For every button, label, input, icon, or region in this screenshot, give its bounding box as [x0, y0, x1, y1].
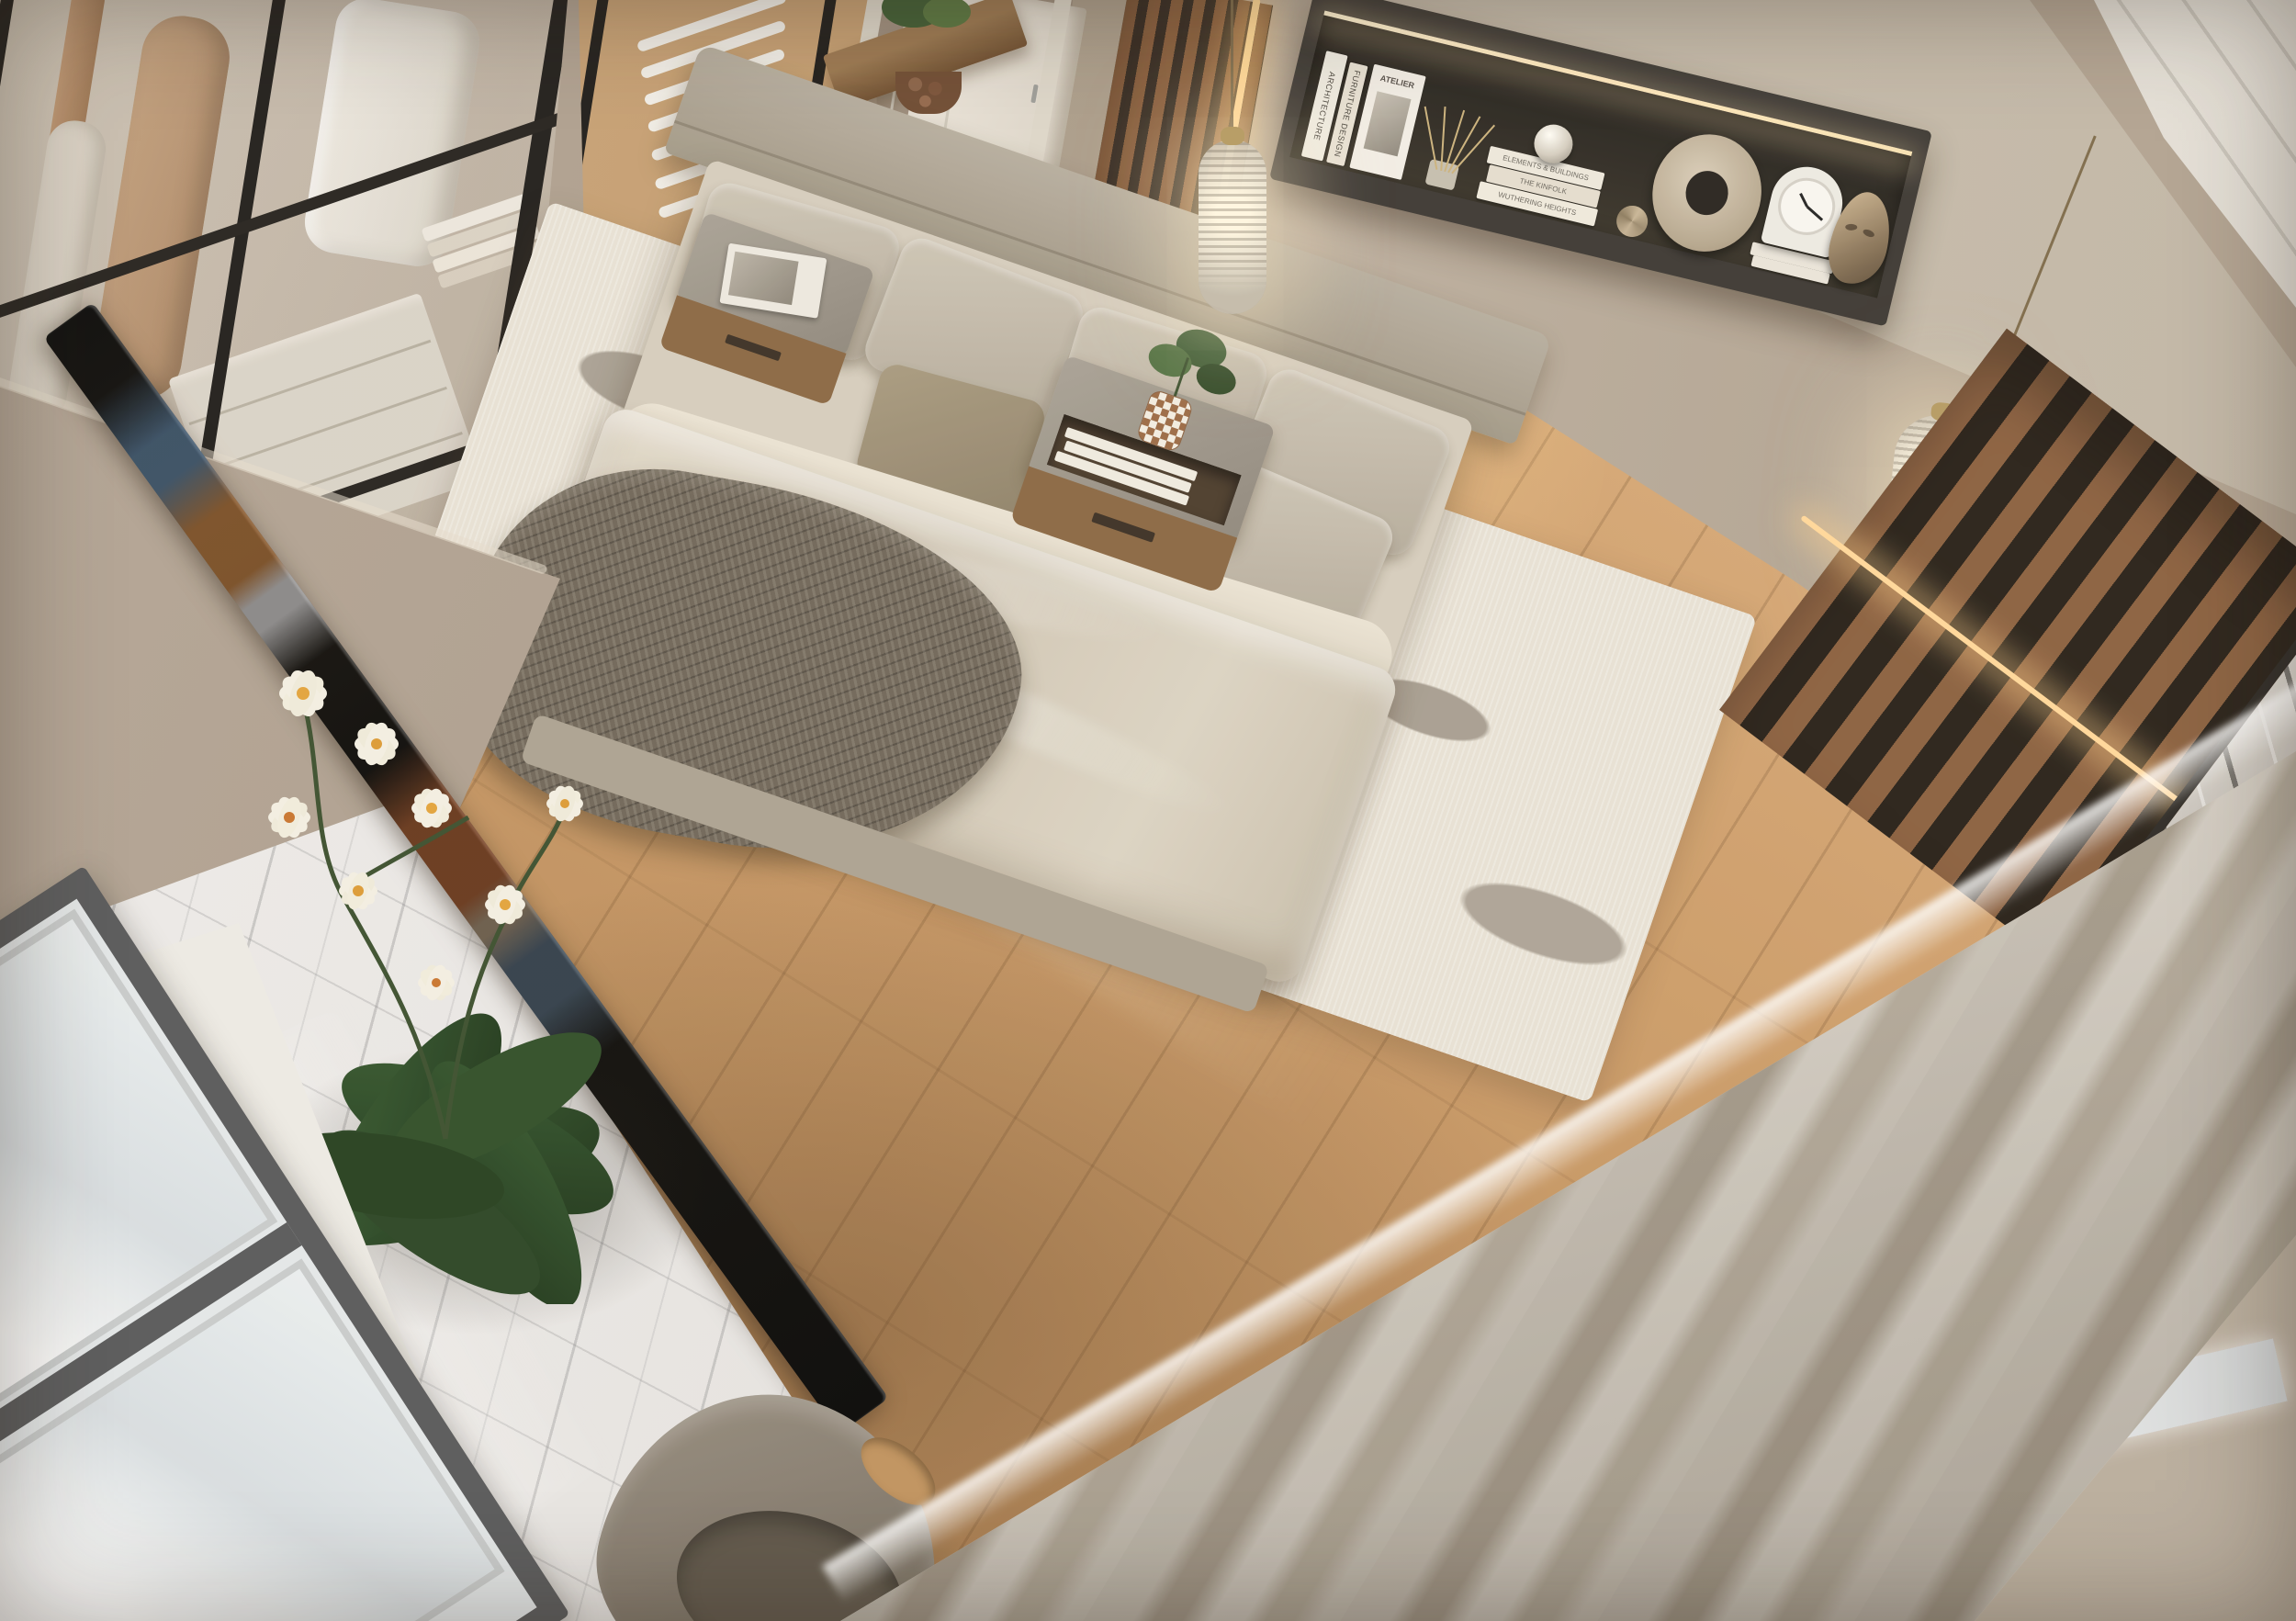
faceted-ball: [1614, 202, 1651, 240]
book-cover-title: ATELIER: [1370, 71, 1424, 92]
orchid-flowers: [266, 667, 585, 1003]
pendant-wire: [1231, 0, 1233, 145]
clock-face: [1773, 172, 1841, 241]
glass-pendant-left: [1199, 140, 1266, 314]
clock-minute-hand: [1806, 206, 1823, 221]
bedroom-render-scene: ARCHITECTURE FURNITURE DESIGN ATELIER EL…: [0, 0, 2296, 1621]
